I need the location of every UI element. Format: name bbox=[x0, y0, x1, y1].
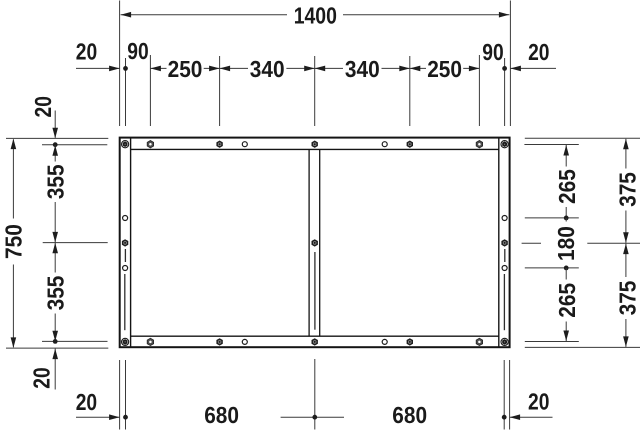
svg-text:680: 680 bbox=[204, 402, 239, 428]
svg-text:265: 265 bbox=[554, 169, 580, 204]
svg-text:180: 180 bbox=[553, 226, 579, 261]
svg-text:90: 90 bbox=[482, 39, 503, 65]
svg-text:355: 355 bbox=[43, 276, 69, 311]
svg-text:250: 250 bbox=[427, 56, 462, 82]
svg-text:750: 750 bbox=[1, 224, 27, 259]
svg-text:680: 680 bbox=[392, 402, 427, 428]
svg-text:20: 20 bbox=[29, 367, 55, 388]
svg-text:340: 340 bbox=[345, 56, 380, 82]
svg-text:340: 340 bbox=[250, 56, 285, 82]
svg-text:250: 250 bbox=[168, 56, 203, 82]
svg-text:375: 375 bbox=[614, 281, 640, 316]
svg-text:375: 375 bbox=[614, 172, 640, 207]
svg-text:20: 20 bbox=[30, 96, 56, 117]
svg-text:1400: 1400 bbox=[294, 2, 337, 28]
svg-text:265: 265 bbox=[554, 283, 580, 318]
svg-text:20: 20 bbox=[528, 389, 549, 415]
svg-text:90: 90 bbox=[127, 38, 148, 64]
svg-text:20: 20 bbox=[76, 38, 97, 64]
svg-text:355: 355 bbox=[43, 164, 69, 199]
svg-text:20: 20 bbox=[76, 389, 97, 415]
svg-text:20: 20 bbox=[528, 39, 549, 65]
